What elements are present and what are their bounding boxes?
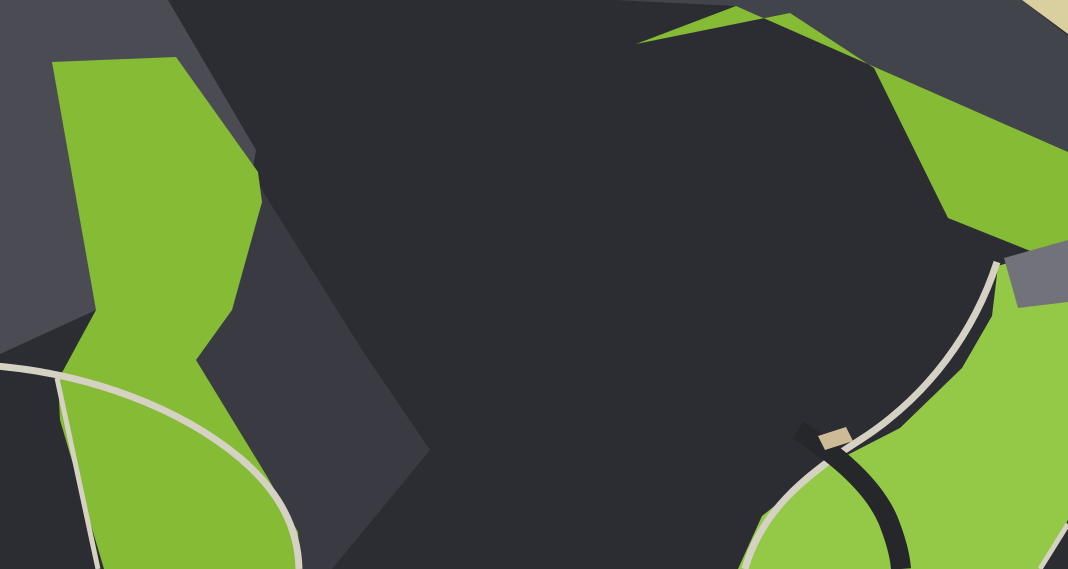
parking-garage-rendering: Aerial 3D architectural rendering of a t… [0,0,1068,569]
scene-canvas [0,0,1068,569]
